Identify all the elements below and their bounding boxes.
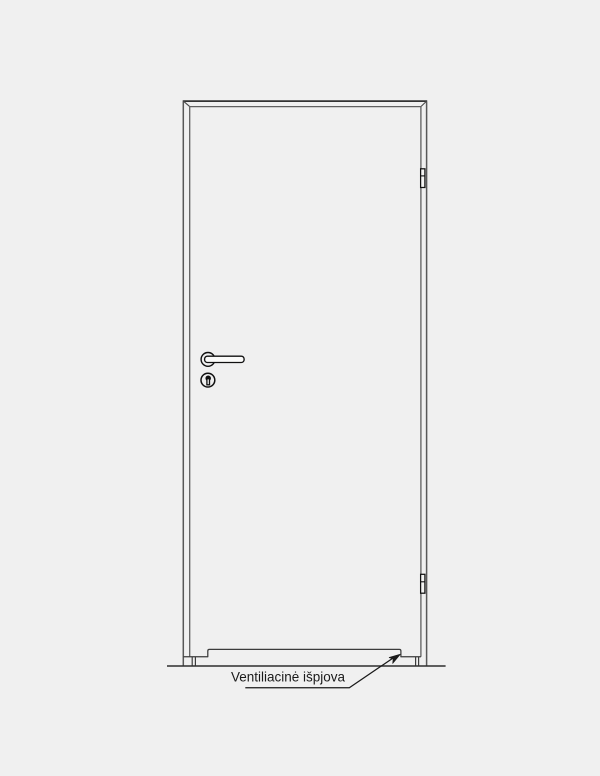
svg-text:Ventiliacinė išpjova: Ventiliacinė išpjova xyxy=(231,669,345,684)
